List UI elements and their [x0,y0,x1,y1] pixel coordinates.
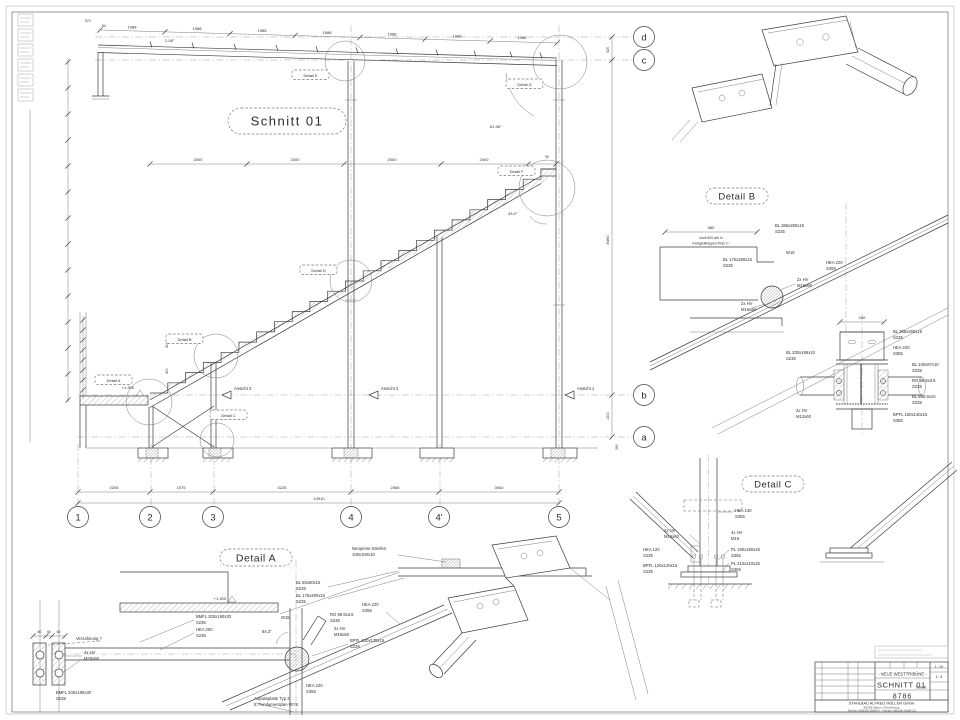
material-label: HEA 140 [735,508,752,513]
bolt-label: M16x65 [797,283,813,288]
material-label: S235 [775,229,785,234]
note-label: 100x100x10 [352,552,375,557]
scale-label: 1 : 20 [935,665,944,669]
material-label: BL 175x280x15 [296,593,326,598]
material-label: BL 175x280x15 [723,257,753,262]
callout-label: Detail F [510,169,524,174]
dim-label: 240 [859,315,866,320]
callout-label: Detail C [221,413,235,418]
dim-label: 2205 [110,485,120,490]
section-title: Schnitt 01 [251,114,324,129]
grid-bubble-label: c [642,56,647,67]
material-label: S355 [362,608,372,613]
dim-label: 2400 [480,157,490,162]
drawing-subtitle: Details [916,686,927,690]
elevation-label: +1.300 [214,596,227,601]
material-label: S235 [643,553,653,558]
material-label: BMFL 200x190x30 [196,614,232,619]
callout-label: Detail D [311,268,325,273]
bolt-detail-circle [761,286,783,308]
dim-label: 60 [47,630,51,634]
bolt-detail-circle [285,647,309,671]
material-label: S235 [196,620,206,625]
material-label: BPFL 120x135x15 [350,638,385,643]
dim-label: 14910 [313,496,325,501]
dim-label: 1988 [388,32,398,37]
note-label: nicht 600 wie in [699,236,722,240]
dim-left-chain [65,58,85,403]
grid-bubble-label: 4 [348,513,353,524]
bolt-label: 4x HV [731,530,743,535]
bolt-label: M16x60 [664,534,680,539]
dim-label: 400 [165,368,169,374]
section-view: 1988 1988 1988 1988 1988 1988 1988 570 8… [65,19,654,528]
material-label: S235 [912,368,922,373]
dim-label: 1988 [518,35,528,40]
footings [86,448,598,458]
drawing-sheet: 1988 1988 1988 1988 1988 1988 1988 570 8… [0,0,960,720]
angle-arc [530,216,547,224]
dim-label: 1975 [177,485,187,490]
material-label: S235 [196,633,206,638]
dim-label: 1988 [128,25,138,30]
material-label: BPFL 120x120x15 [643,563,678,568]
note-label: Fertigteiltreppen-Plan 2 ! [692,242,729,246]
detail-a-labels: Neoprene-Streifen 100x100x10 BL 80x80x15… [56,546,387,707]
material-label: S235 [786,356,796,361]
note-label: lt. Fundamentplan 0076 [254,702,299,707]
material-label: BL 200x196x10 [786,350,816,355]
dim-label: 2000 [388,157,398,162]
dim-580: 580 nicht 600 wie in Fertigteiltreppen-P… [662,225,759,246]
dim-label: 2000 [194,157,204,162]
bolt-label: M20x80 [84,656,100,661]
bolt-label: M16x60 [334,632,350,637]
iso-top-right [672,16,920,142]
note-label: Anpassplatte Typ 2 [254,696,290,701]
dim-label: 90 [545,155,549,159]
grid-bubble-label: 2 [147,513,152,524]
grid-bubble-label: b [641,391,646,402]
bolt-label: 2x HV [334,626,346,631]
bolt-label: 2x HV [741,301,753,306]
dim-label: 1988 [193,26,203,31]
material-label: BMFL 200x190x30 [56,690,92,695]
callout-label: Detail G [517,82,531,87]
drawing-number: 8786 [893,694,913,701]
grid-bubble-label: 4' [435,513,442,524]
dim-label: 2000 [291,157,301,162]
bolt-label: 4x HV [84,650,96,655]
material-label: HEA 220 [826,260,843,265]
callout-label: Detail E [303,73,317,78]
grid-bubble-label: 3 [210,513,215,524]
bolt-label: 2x HV [664,528,676,533]
material-label: HEA 120 [643,547,660,552]
grid-bubble-label: a [641,433,647,444]
scale-label: 1 : 5 [936,675,943,679]
material-label: S235 [296,599,306,604]
material-label: HEA 220 [306,683,323,688]
material-label: S355 [826,266,836,271]
material-label: S355 [893,351,903,356]
detail-b-view: Detail B 580 nicht 600 wie in Fertigteil… [650,188,948,434]
angle-label: 61.56° [490,124,502,129]
title-block: - NEUE WESTTRIBÜNE - SCHNITT 01 Details … [815,646,948,712]
dim-label: 1300 [606,412,610,420]
dim-60: 60 60 60 [30,630,67,639]
callout-label: Detail A [107,378,121,383]
dim-top: 1988 1988 1988 1988 1988 1988 1988 570 8… [85,19,560,46]
bolt-label: M16x60 [741,307,757,312]
material-label: S355 [735,514,745,519]
dim-label: 580 [708,225,715,230]
dim-label: 60 [38,630,42,634]
material-label: S355 [731,553,741,558]
dim-label: 1988 [453,33,463,38]
dim-label: 1988 [258,28,268,33]
material-label: RO 88.9x3.6 [912,378,936,383]
material-label: S235 [912,384,922,389]
material-label: S355 [893,418,903,423]
bolt-label: M16 [731,536,740,541]
ansicht-label: Ansicht 1 [577,386,595,391]
detail-a-title: Detail A [236,553,276,565]
dim-label: 60 [57,630,61,634]
ansicht-label: Ansicht 2 [381,386,399,391]
material-label: S355 [306,689,316,694]
material-label: S235 [643,569,653,574]
weld-label: W15 [281,615,290,620]
note-label: Neoprene-Streifen [352,546,387,551]
grid-bubble-label: 1 [75,513,80,524]
material-label: BL 100x87x10 [912,362,939,367]
material-label: PL 210x210x25 [731,561,761,566]
material-label: BL 366x280x15 [893,329,923,334]
bolt-label: 2x HV [797,277,809,282]
dim-label: 1988 [323,30,333,35]
material-label: RO 88.9x3.6 [330,612,354,617]
columns [149,60,565,448]
detail-c-view: Detail C HEA 140 S355 2x HV M16x60 4x HV… [630,455,957,607]
material-label: BL 366x280x15 [775,223,805,228]
material-label: HEA 200 [196,627,213,632]
drawing-canvas: 1988 1988 1988 1988 1988 1988 1988 570 8… [0,0,960,720]
material-label: BPFL 150x140x15 [893,412,928,417]
dim-label: 570 [85,19,91,23]
material-label: S235 [912,400,922,405]
grid-bubble-label: d [641,33,646,44]
company-phone: Telefon (08236) 8208-0 · Telefax (08236)… [847,708,916,712]
material-label: S235 [893,335,903,340]
roof-angle-label: 2.08° [165,38,175,43]
dim-label: 4225 [278,485,288,490]
dim-label: 3940 [495,485,505,490]
note-label: Verzahnung ? [76,636,103,641]
material-label: S235 [330,618,340,623]
material-label: S355 [731,567,741,572]
dim-label: 8460 [605,235,610,245]
dim-label: 2565 [391,485,401,490]
dim-label: 525 [606,47,610,53]
left-reference-tags [18,14,33,442]
dim-label: 290 [615,444,619,450]
dim-right: 525 8460 1300 290 [605,34,619,449]
detail-b-title: Detail B [718,192,755,203]
dim-mid: 2000 2000 2000 2400 90 [147,155,558,167]
callout-label: Detail B [177,337,191,342]
bolt-label: 2x HV [796,408,808,413]
material-label: S235 [296,586,306,591]
weld-label: W16 [786,250,795,255]
material-label: PL 180x180x25 [731,547,761,552]
angle-label: 84.3° [262,629,272,634]
material-label: BL 80x80x15 [296,580,321,585]
ansicht-label: Ansicht 3 [234,386,252,391]
material-label: HEA 220 [893,345,910,350]
grid-bubble-label: 5 [556,513,561,524]
grid-bubbles-bottom: 1 2 3 4 4' 5 [68,507,570,528]
material-label: BL ø88.9x10 [912,394,936,399]
detail-b-labels: BL 366x280x15 S235 BL 175x280x15 S235 W1… [723,223,939,423]
material-label: S235 [723,263,733,268]
detail-c-labels: HEA 140 S355 2x HV M16x60 4x HV M16 HEA … [643,508,761,574]
ansicht-markers: Ansicht 3 Ansicht 2 Ansicht 1 [222,386,595,399]
angle-label: 43.4° [508,211,518,216]
soil-hatch [138,458,577,462]
material-label: HEA 220 [362,602,379,607]
bolt-label: M12x60 [796,414,812,419]
grid-bubbles-right: d c b a [634,27,655,448]
dim-total: 14910 [75,496,561,506]
dim-bottom: 2205 1975 4225 2565 3940 [75,485,561,495]
material-label: S235 [350,644,360,649]
detail-c-title: Detail C [754,480,792,491]
detail-callout-circles [126,35,587,457]
project-title: - NEUE WESTTRIBÜNE - [878,672,927,677]
material-label: S235 [56,696,66,701]
